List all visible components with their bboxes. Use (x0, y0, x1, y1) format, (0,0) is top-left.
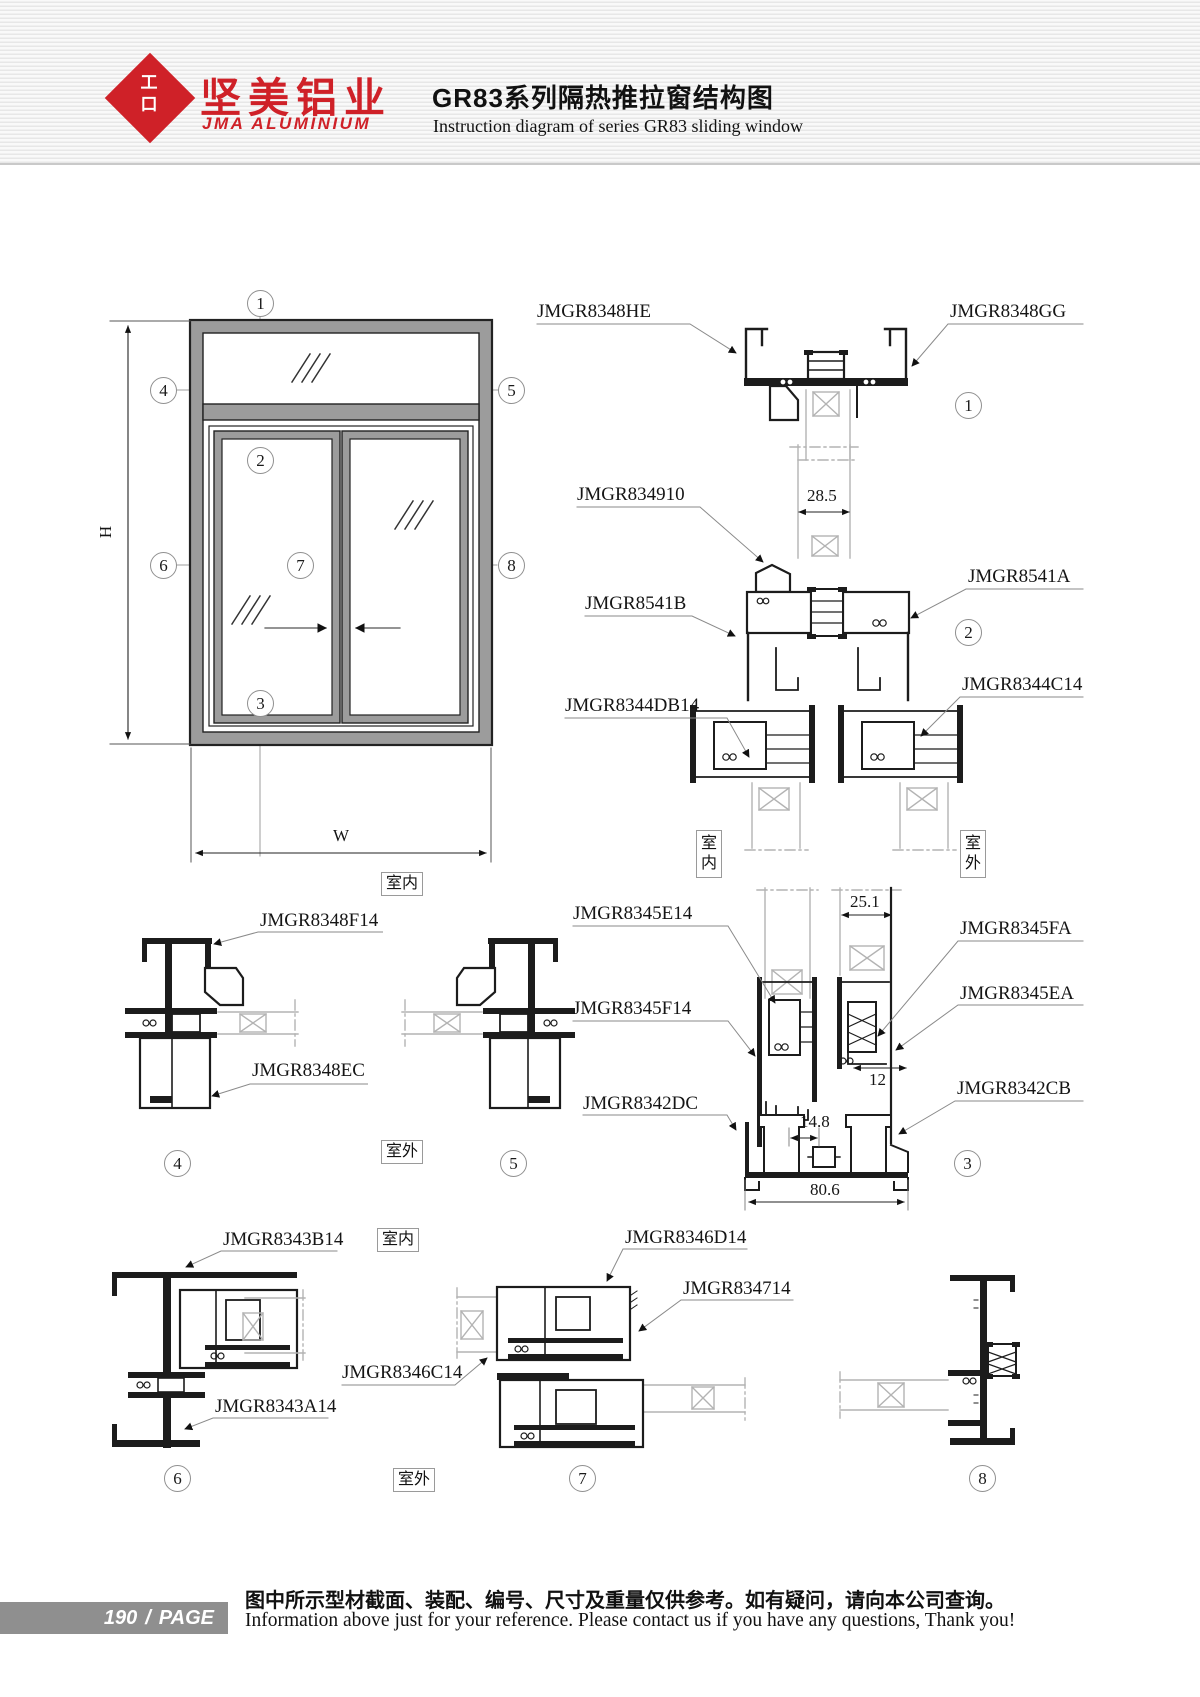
outdoor-label-detail67: 室外 (393, 1468, 435, 1492)
part-label-jmgr8344db14: JMGR8344DB14 (565, 695, 699, 717)
page-label: PAGE (159, 1607, 214, 1630)
footer-note-chinese: 图中所示型材截面、装配、编号、尺寸及重量仅供参考。如有疑问，请向本公司查询。 (245, 1584, 1005, 1613)
elevation-marker-1: 1 (247, 290, 274, 317)
part-label-jmgr8541b: JMGR8541B (585, 593, 686, 615)
part-label-jmgr8348f14: JMGR8348F14 (260, 910, 378, 932)
part-label-jmgr834910: JMGR834910 (577, 484, 685, 506)
detail-1-drawing (537, 324, 1083, 460)
part-label-jmgr8344c14: JMGR8344C14 (962, 674, 1082, 696)
page-separator: / (145, 1607, 151, 1630)
part-label-jmgr8345ea: JMGR8345EA (960, 983, 1074, 1005)
dim-25-1: 25.1 (850, 892, 880, 912)
detail-4-number: 4 (164, 1150, 191, 1177)
page-number-bar: 190 / PAGE (0, 1602, 228, 1634)
part-label-jmgr8348he: JMGR8348HE (537, 301, 651, 323)
detail-8-drawing (840, 1275, 1020, 1445)
dim-14-8: 14.8 (800, 1112, 830, 1132)
part-label-jmgr8345e14: JMGR8345E14 (573, 903, 692, 925)
part-label-jmgr8343b14: JMGR8343B14 (223, 1229, 343, 1251)
part-label-jmgr8345f14: JMGR8345F14 (573, 998, 691, 1020)
drawing-layer (0, 0, 1200, 1697)
dim-80-6: 80.6 (810, 1180, 840, 1200)
outdoor-label-detail45: 室外 (381, 1140, 423, 1164)
detail-8-number: 8 (969, 1465, 996, 1492)
part-label-jmgr8343a14: JMGR8343A14 (215, 1396, 336, 1418)
detail-7-number: 7 (569, 1465, 596, 1492)
detail-4-drawing (125, 938, 298, 1108)
dim-28-5: 28.5 (807, 486, 837, 506)
detail-1-number: 1 (955, 392, 982, 419)
part-label-jmgr8541a: JMGR8541A (968, 566, 1070, 588)
detail-6-number: 6 (164, 1465, 191, 1492)
detail-2-number: 2 (955, 619, 982, 646)
indoor-label-detail45: 室内 (381, 872, 423, 896)
dim-12: 12 (869, 1070, 886, 1090)
indoor-label-detail67: 室内 (377, 1228, 419, 1252)
part-label-jmgr8348gg: JMGR8348GG (950, 301, 1066, 323)
detail-6-drawing (112, 1251, 337, 1448)
outdoor-label-detail2: 室外 (960, 830, 986, 878)
elevation-height-label: H (96, 526, 116, 538)
footer-note-english: Information above just for your referenc… (245, 1610, 1015, 1632)
part-label-jmgr8342dc: JMGR8342DC (583, 1093, 698, 1115)
detail-5-drawing (402, 938, 575, 1108)
elevation-marker-2: 2 (247, 447, 274, 474)
part-label-jmgr8346d14: JMGR8346D14 (625, 1227, 746, 1249)
part-label-jmgr8348ec: JMGR8348EC (252, 1060, 365, 1082)
elevation-marker-6: 6 (150, 552, 177, 579)
catalog-page: 工 口 坚美铝业 JMA ALUMINIUM GR83系列隔热推拉窗结构图 In… (0, 0, 1200, 1697)
part-label-jmgr8346c14: JMGR8346C14 (342, 1362, 462, 1384)
elevation-marker-7: 7 (287, 552, 314, 579)
elevation-width-label: W (333, 826, 349, 846)
page-number: 190 (104, 1607, 137, 1630)
part-label-jmgr8342cb: JMGR8342CB (957, 1078, 1071, 1100)
detail-3-number: 3 (954, 1150, 981, 1177)
elevation-marker-5: 5 (498, 377, 525, 404)
elevation-marker-3: 3 (247, 690, 274, 717)
part-label-jmgr834714: JMGR834714 (683, 1278, 791, 1300)
indoor-label-detail2: 室内 (696, 830, 722, 878)
detail-5-number: 5 (500, 1150, 527, 1177)
elevation-marker-4: 4 (150, 377, 177, 404)
elevation-marker-8: 8 (498, 552, 525, 579)
part-label-jmgr8345fa: JMGR8345FA (960, 918, 1072, 940)
